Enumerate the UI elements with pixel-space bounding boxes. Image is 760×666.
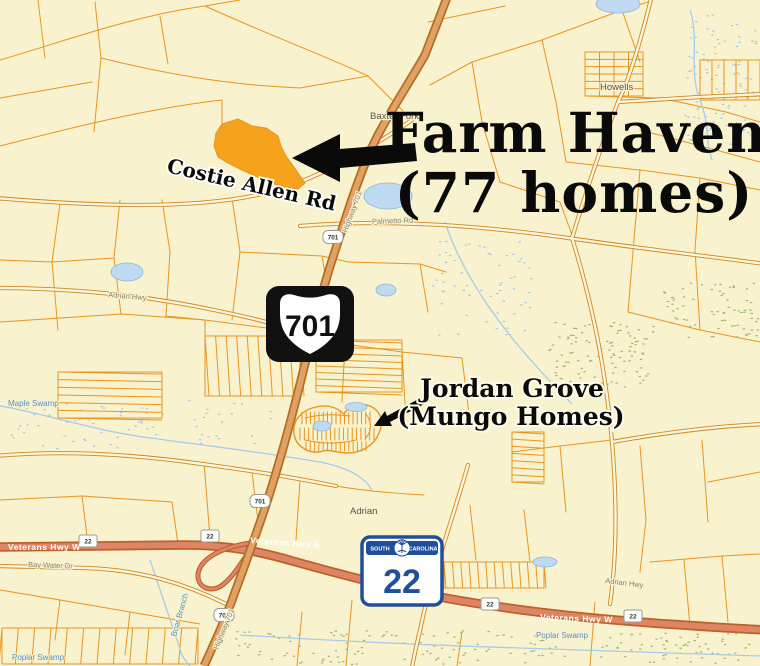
- sc-shield-carolina-text: CAROLINA: [408, 547, 437, 553]
- route-marker-22: 22: [79, 535, 97, 547]
- veterans-hwy-w-label: Veterans Hwy W: [8, 542, 81, 552]
- route-22-text: 22: [84, 539, 92, 546]
- svg-text:22: 22: [206, 534, 214, 541]
- maple-swamp-label: Maple Swamp: [8, 399, 59, 408]
- poplar-swamp-label: Poplar Swamp: [536, 631, 589, 640]
- svg-text:701: 701: [255, 499, 266, 506]
- route-marker-22: 22: [624, 610, 642, 622]
- adrian-label: Adrian: [350, 506, 377, 517]
- jordan-grove-subtitle: (Mungo Homes): [397, 402, 624, 431]
- route-marker-701: 701: [323, 231, 343, 244]
- route-marker-22: 22: [201, 530, 219, 542]
- route-marker-22: 22: [481, 598, 499, 610]
- howells-label: Howells: [600, 82, 634, 93]
- sc-shield-south-text: SOUTH: [370, 547, 389, 553]
- svg-text:701: 701: [328, 235, 339, 242]
- us-701-shield: 701: [266, 286, 354, 362]
- svg-text:22: 22: [629, 614, 637, 621]
- us-701-number: 701: [285, 310, 335, 343]
- sc-22-number: 22: [383, 563, 421, 601]
- farm-haven-title: Farm Haven: [385, 100, 760, 165]
- bay-water-dr-label: Bay Water Dr: [28, 560, 74, 571]
- poplar-swamp-label: Poplar Swamp: [12, 653, 65, 662]
- parcel-map: 22 22 22 22 701 701 701 Baxter Fork Howe…: [0, 0, 760, 666]
- map-canvas: 22 22 22 22 701 701 701 Baxter Fork Howe…: [0, 0, 760, 666]
- svg-text:22: 22: [486, 602, 494, 609]
- farm-haven-subtitle: (77 homes): [395, 160, 754, 225]
- sc-22-shield: SOUTH CAROLINA 22: [362, 537, 442, 605]
- jordan-grove-title: Jordan Grove: [418, 374, 604, 403]
- route-marker-701: 701: [250, 495, 270, 508]
